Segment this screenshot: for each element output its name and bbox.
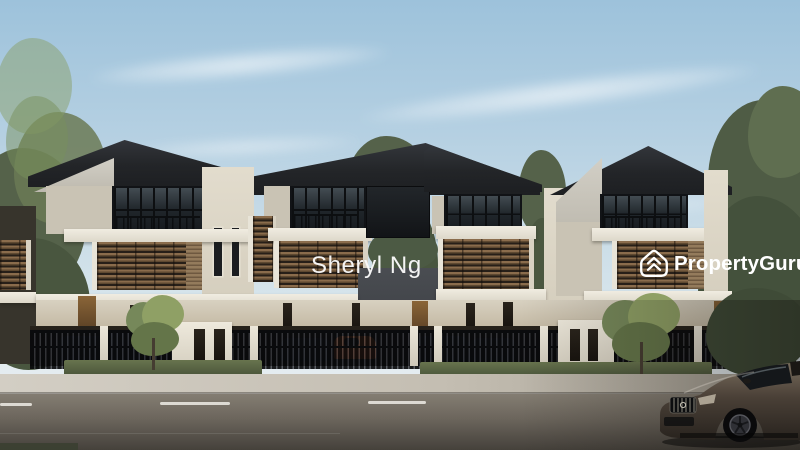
house1-upper-wall	[46, 186, 114, 234]
brand-name-property: Property	[674, 252, 759, 275]
cloud-wisp	[360, 56, 760, 133]
gate-panel	[214, 329, 225, 362]
facade-band	[0, 292, 36, 303]
brand-watermark: PropertyGuru	[640, 248, 800, 278]
ground-window	[503, 302, 513, 328]
rocker-shadow	[680, 433, 798, 438]
lane-marking	[0, 403, 32, 406]
foreground-car	[650, 353, 800, 449]
louvre-screen	[0, 240, 31, 290]
entry-door	[78, 296, 96, 328]
fence-pillar	[410, 326, 418, 366]
logo-chevron-top	[648, 258, 660, 264]
car-mirror	[743, 378, 751, 383]
propertyguru-logo-icon	[640, 248, 668, 278]
brick-wall	[186, 242, 202, 290]
balcony-fascia	[436, 226, 536, 239]
logo-chevron-bottom	[648, 264, 660, 270]
agent-name-text: Sheryl Ng	[311, 252, 422, 279]
balcony-fascia	[64, 229, 256, 242]
balcony-fascia	[268, 228, 372, 241]
gate-panel	[588, 329, 598, 361]
brand-name: PropertyGuru	[674, 249, 800, 278]
fence-pillar	[434, 326, 442, 366]
louvre-screen	[438, 239, 534, 289]
listing-photo: Sheryl Ng PropertyGuru	[0, 0, 800, 450]
fence-pillar	[540, 326, 548, 366]
brand-name-guru: Guru	[759, 252, 800, 275]
gate-panel	[570, 329, 580, 361]
lane-marking	[160, 402, 230, 405]
lane-marking	[368, 401, 426, 404]
agent-watermark: Sheryl Ng	[311, 252, 422, 280]
grass-strip-near	[0, 443, 78, 450]
wheel-hub	[738, 423, 743, 428]
dark-glazed-tower	[366, 186, 430, 238]
tree-trunk	[152, 338, 155, 370]
louvre-screen	[92, 242, 196, 290]
road-seam	[0, 433, 340, 434]
louvre-screen	[248, 216, 276, 282]
tree-trunk	[640, 342, 643, 374]
gate-panel	[194, 329, 205, 362]
car-intake	[664, 417, 694, 426]
balcony-fascia	[592, 228, 706, 241]
cloud-wisp	[89, 39, 390, 91]
